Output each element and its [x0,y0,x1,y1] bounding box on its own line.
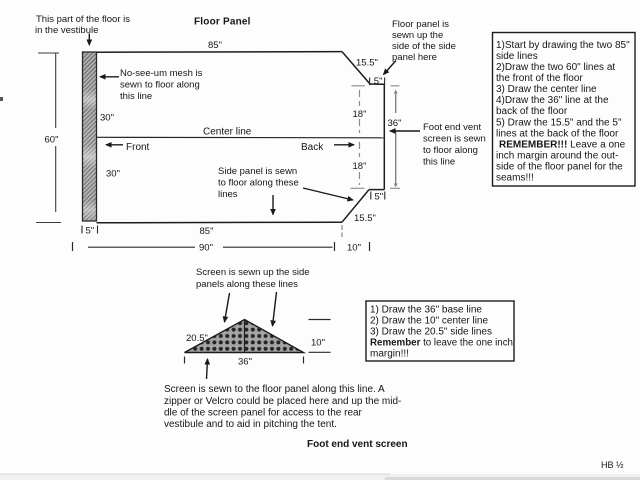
svg-text:Remember to leave the one inch: Remember to leave the one inch [370,338,513,349]
svg-text:5": 5" [374,76,383,87]
svg-text:10": 10" [347,243,361,254]
svg-text:10": 10" [311,338,325,349]
svg-text:1) Draw the 36" base line: 1) Draw the 36" base line [370,305,482,316]
svg-text:2) Draw the 10" center line: 2) Draw the 10" center line [370,316,488,327]
svg-text:18": 18" [353,109,367,120]
svg-text:side of the floor panel for th: side of the floor panel for the [496,162,623,173]
svg-text:Foot end vent: Foot end vent [423,122,481,133]
svg-text:Screen is sewn to the floor pa: Screen is sewn to the floor panel along … [164,384,385,395]
svg-text:36": 36" [238,357,252,368]
svg-text:15.5": 15.5" [356,58,378,69]
svg-text:side of the side: side of the side [392,41,456,52]
svg-text:to floor along these: to floor along these [218,178,299,189]
svg-text:36": 36" [388,118,402,129]
svg-text:seams!!!: seams!!! [496,173,534,184]
svg-text:5) Draw the 15.5" and the 5": 5) Draw the 15.5" and the 5" [496,118,622,129]
svg-text:vestibule and to aid in pitchi: vestibule and to aid in pitching the ten… [164,419,337,430]
svg-text:Front: Front [126,142,150,153]
svg-text:4)Draw the 36" line at the: 4)Draw the 36" line at the [496,95,609,106]
svg-text:side lines: side lines [496,51,538,62]
svg-text:panel here: panel here [392,52,437,63]
svg-text:Screen is sewn up the side: Screen is sewn up the side [196,267,310,278]
svg-text:zipper or Velcro could be plac: zipper or Velcro could be placed here an… [164,396,401,407]
svg-text:sewn to floor along: sewn to floor along [120,80,200,91]
svg-text:lines: lines [218,189,238,200]
svg-text:panels along these lines: panels along these lines [196,279,298,290]
svg-text:dle of the screen panel for ac: dle of the screen panel for access to th… [164,408,363,419]
svg-text:30": 30" [106,169,120,180]
svg-text:20.5": 20.5" [186,333,208,344]
svg-text:60": 60" [45,135,59,146]
svg-text:Foot end vent screen: Foot end vent screen [307,439,408,450]
svg-text:3) Draw the center line: 3) Draw the center line [496,84,597,95]
svg-text:to floor along: to floor along [423,145,478,156]
svg-text:No-see-um mesh is: No-see-um mesh is [120,68,203,79]
svg-text:30": 30" [100,113,114,124]
svg-text:Side panel is sewn: Side panel is sewn [218,166,297,177]
svg-text:the front of the floor: the front of the floor [496,73,583,84]
svg-text:85": 85" [208,40,222,51]
svg-text:this line: this line [120,91,152,102]
svg-text:5": 5" [86,226,95,237]
svg-text:lines at the back of the floor: lines at the back of the floor [496,129,619,140]
svg-text:inch margin around the out-: inch margin around the out- [496,151,618,162]
svg-text:Floor panel is: Floor panel is [392,19,449,30]
svg-text:HB ½: HB ½ [601,460,624,470]
svg-text:1)Start by drawing the two 85": 1)Start by drawing the two 85" [496,40,630,51]
svg-text:15.5": 15.5" [354,213,376,224]
svg-text:90": 90" [199,243,213,254]
svg-text:18": 18" [353,161,367,172]
svg-text:back of the floor: back of the floor [496,106,568,117]
svg-text:2)Draw the two 60" lines at: 2)Draw the two 60" lines at [496,62,615,73]
svg-text:margin!!!: margin!!! [370,349,409,360]
svg-text:sewn up the: sewn up the [392,30,443,41]
svg-text:Back: Back [301,142,324,153]
svg-text:This part of the floor is: This part of the floor is [36,14,130,25]
svg-text:REMEMBER!!! Leave a one: REMEMBER!!! Leave a one [499,140,626,151]
svg-text:5": 5" [375,192,384,203]
svg-text:Center line: Center line [203,127,252,138]
svg-text:screen is sewn: screen is sewn [423,134,486,145]
svg-text:85": 85" [200,226,214,237]
svg-text:3) Draw the 20.5" side lines: 3) Draw the 20.5" side lines [370,327,492,338]
svg-text:Floor Panel: Floor Panel [194,17,251,28]
svg-text:this line: this line [423,157,455,168]
